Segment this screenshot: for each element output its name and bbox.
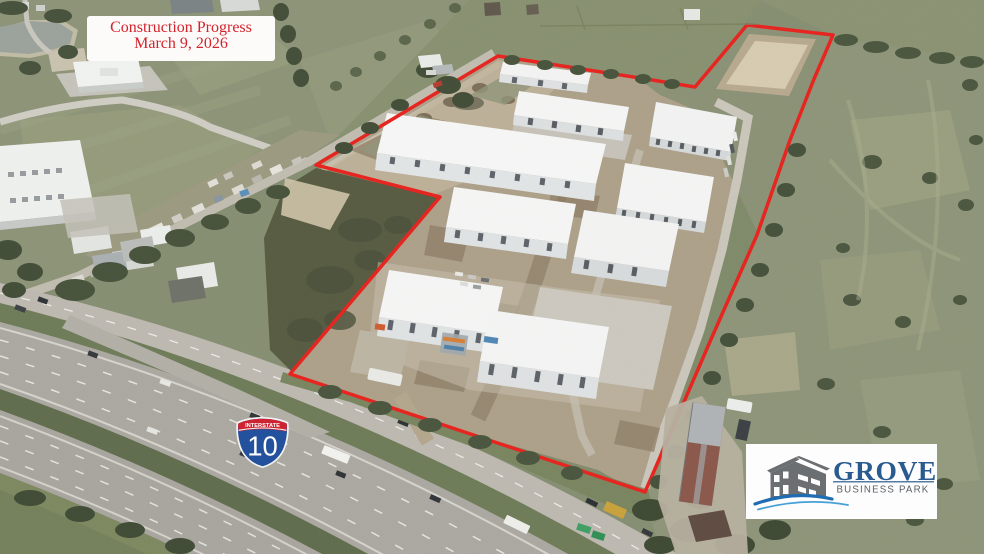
svg-text:10: 10 <box>247 431 278 462</box>
svg-text:INTERSTATE: INTERSTATE <box>245 423 280 429</box>
svg-text:BUSINESS PARK: BUSINESS PARK <box>837 485 930 496</box>
